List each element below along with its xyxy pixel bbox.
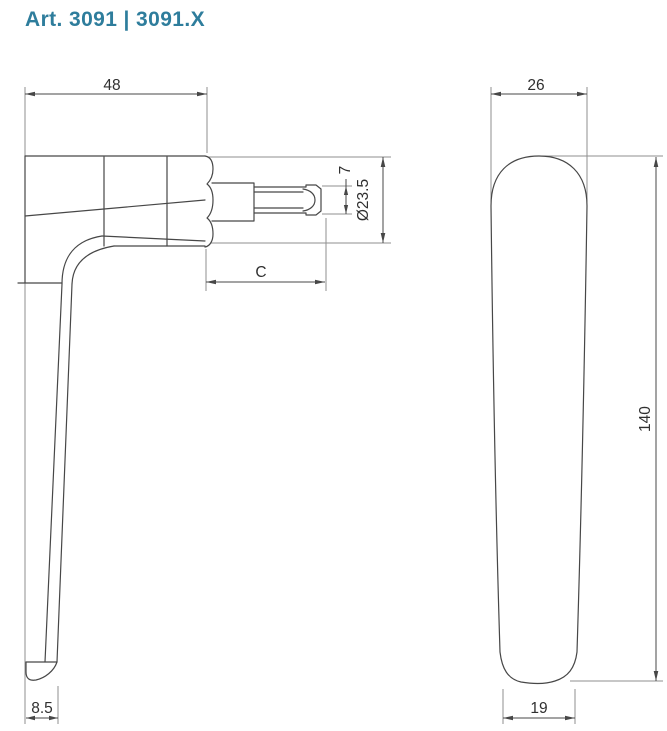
technical-drawing: 48 Ø23.5 7 C 8.5 <box>0 0 667 731</box>
spindle-fork-notch <box>303 189 315 211</box>
front-view: 26 140 19 <box>491 77 663 724</box>
rosette-edge <box>205 156 213 247</box>
dim-grip-width-label: 26 <box>527 77 544 94</box>
dim-spindle-length-label: C <box>255 264 266 281</box>
neck <box>212 183 254 221</box>
lever-foot <box>26 662 57 680</box>
lever-bend <box>62 236 114 284</box>
dim-head-width-label: 48 <box>103 77 120 94</box>
handle-front-outline <box>491 156 587 683</box>
spindle-fork <box>306 185 321 215</box>
lever-arm <box>45 284 72 662</box>
dim-tip-depth-label: 8.5 <box>31 700 53 717</box>
front-view-dimension-lines <box>491 92 658 721</box>
dim-tip-width-label: 19 <box>530 700 547 717</box>
side-view: 48 Ø23.5 7 C 8.5 <box>18 77 391 724</box>
handle-side-outline <box>18 156 321 680</box>
spindle <box>254 187 306 213</box>
technical-drawing-page: Art. 3091 | 3091.X <box>0 0 667 731</box>
dim-spindle-square-label: 7 <box>337 166 354 175</box>
front-view-extension-lines <box>491 87 663 724</box>
dim-grip-length-label: 140 <box>637 406 654 432</box>
dim-neck-diameter-label: Ø23.5 <box>355 179 372 221</box>
